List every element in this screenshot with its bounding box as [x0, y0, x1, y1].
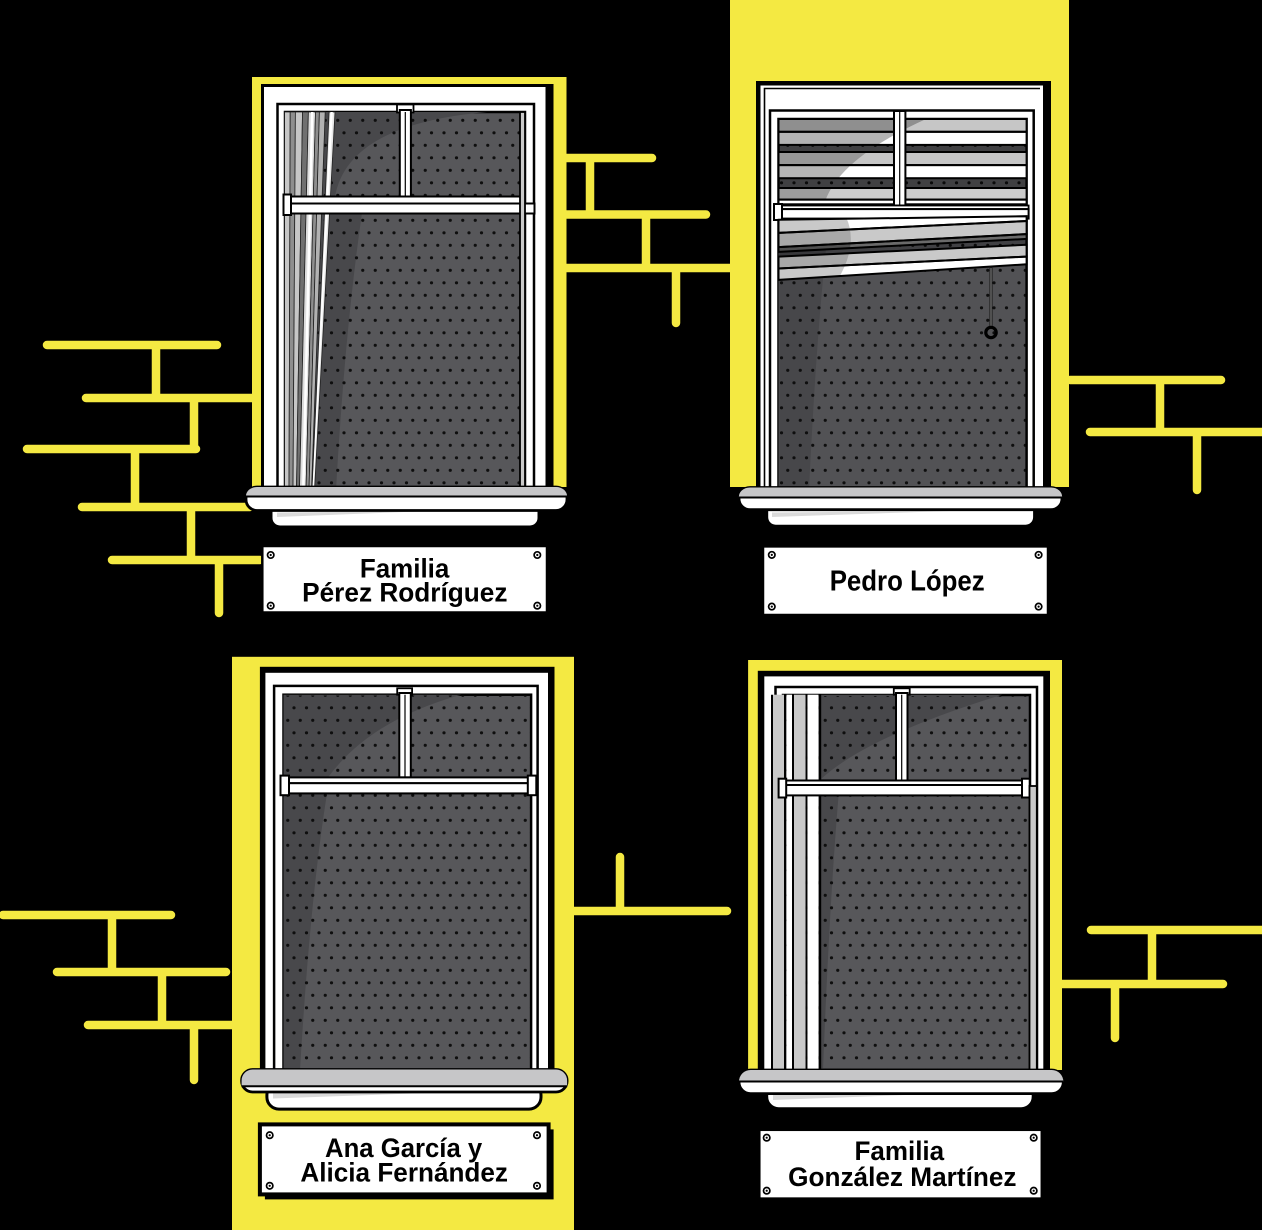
svg-text:Alicia Fernández: Alicia Fernández	[300, 1157, 508, 1187]
svg-text:González Martínez: González Martínez	[788, 1162, 1016, 1192]
svg-text:Pedro López: Pedro López	[830, 566, 985, 598]
svg-text:Pérez Rodríguez: Pérez Rodríguez	[302, 578, 507, 608]
